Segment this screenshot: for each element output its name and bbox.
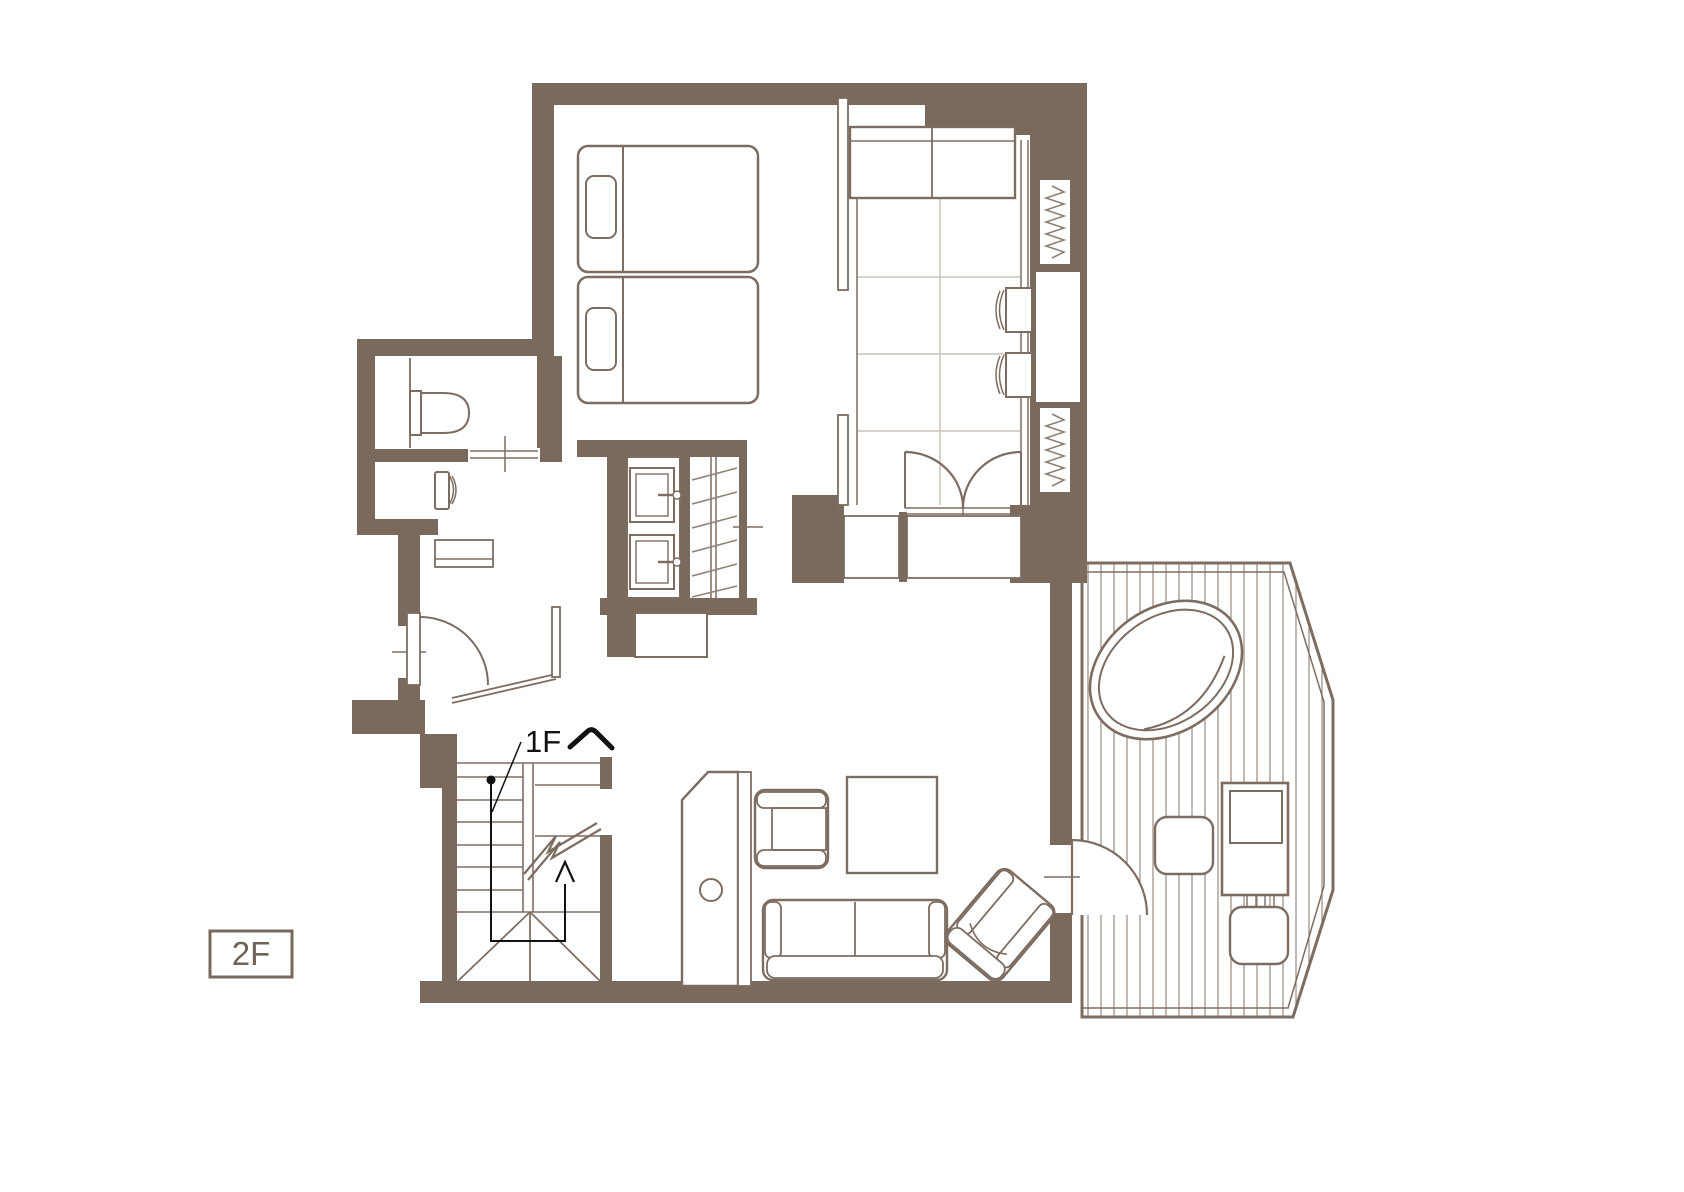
tatami-chest: [850, 127, 1015, 198]
stair-winders: [458, 912, 600, 981]
wardrobe-closet: [692, 457, 763, 598]
sink-2: [630, 535, 681, 589]
stairs-direction-label: 1F: [525, 724, 612, 759]
luggage-bench: [635, 613, 707, 657]
vanity-counter: [627, 457, 681, 598]
twin-bed-1: [578, 146, 758, 272]
deck-terrace: [1044, 560, 1333, 1020]
stairs-direction-text: 1F: [525, 724, 561, 759]
washlet-icon: [435, 472, 456, 509]
hiragana-he-glyph: [570, 730, 612, 748]
fusuma-partition: [838, 98, 848, 505]
floor-badge-text: 2F: [232, 935, 271, 972]
sink-1: [630, 468, 681, 522]
floor-badge: 2F: [210, 931, 292, 977]
tv-cabinet: [682, 772, 751, 986]
floor-chair-1: [996, 288, 1032, 332]
deck-stool-1: [1155, 817, 1213, 874]
storage-closets: [844, 516, 1021, 578]
twin-bed-2: [578, 277, 758, 403]
angled-wall: [452, 674, 556, 703]
deck-stool-2: [1230, 907, 1288, 964]
living-room: [682, 772, 1058, 986]
pillow: [586, 176, 616, 238]
stair-break-line: [524, 823, 601, 880]
armchair: [755, 790, 828, 868]
deck-table: [1222, 783, 1288, 906]
pillow: [586, 308, 616, 370]
floor-chair-2: [996, 353, 1032, 397]
double-swing-doors: [905, 452, 1021, 524]
closet-hanging-marks: [692, 468, 737, 597]
lounge-chair: [942, 865, 1059, 985]
tatami-grid: [857, 198, 1020, 505]
washlet-room: [435, 472, 456, 509]
bedroom: [578, 146, 758, 403]
coffee-table: [847, 777, 937, 873]
deck-door: [1044, 840, 1147, 915]
floor-plan: 1F: [0, 0, 1684, 1192]
stair-treads: [457, 763, 601, 912]
hall-partition: [552, 607, 560, 677]
hall-alcove: [435, 540, 493, 567]
staircase: 1F: [457, 724, 612, 981]
hinged-door: [407, 613, 488, 685]
floor-plan-page: 1F: [0, 0, 1684, 1192]
sofa: [763, 900, 947, 980]
toilet-icon: [410, 391, 469, 435]
